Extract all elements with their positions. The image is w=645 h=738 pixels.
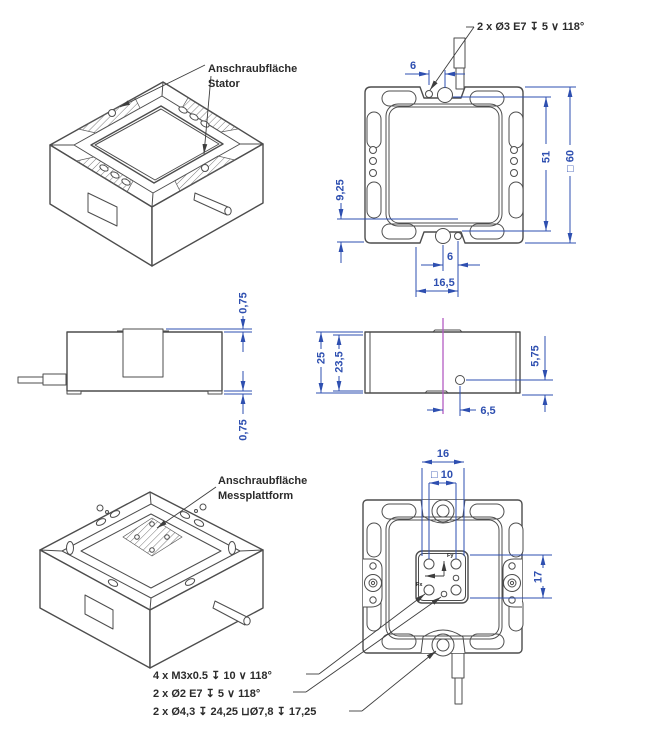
dim-0-75-top: 0,75: [238, 292, 250, 313]
dim-16: 16: [437, 448, 449, 460]
thread-hole-m3: [424, 585, 434, 595]
dim-16-5: 16,5: [433, 277, 454, 289]
dim-5-75: 5,75: [530, 345, 542, 366]
pin-hole-o2: [441, 591, 447, 597]
thread-hole-m3: [451, 559, 461, 569]
callout-thread-text: 4 x M3x0.5 ↧ 10 ∨ 118°: [153, 670, 272, 682]
dim-10-square: □ 10: [431, 469, 453, 481]
mount-hole: [436, 229, 451, 244]
technical-drawing-page: 6 51 □ 60 9,25 6: [0, 0, 645, 738]
dim-23-5: 23,5: [334, 351, 346, 372]
axis-fy-label: Fy: [447, 553, 454, 559]
iso-top-view: [50, 82, 263, 266]
plan-top-view: 6 51 □ 60 9,25 6: [334, 21, 584, 297]
platform-side: [123, 329, 163, 377]
callout-counterbore-text: 2 x Ø4,3 ↧ 24,25 ⊔Ø7,8 ↧ 17,25: [153, 706, 316, 718]
cable-wire: [456, 68, 464, 89]
foot: [208, 391, 222, 394]
label-platform-line2: Messplattform: [218, 490, 293, 502]
dim-25: 25: [316, 352, 328, 364]
flexure-slot: [509, 523, 523, 557]
pin-hole-o3: [426, 91, 433, 98]
axis-fx-label: Fx: [416, 582, 423, 588]
dim-inner-height: 23,5: [333, 335, 363, 391]
cable-connector-3: [452, 653, 464, 678]
cable-wire-3: [455, 678, 462, 704]
callout-pin-hole-text: 2 x Ø2 E7 ↧ 5 ∨ 118°: [153, 688, 260, 700]
iso-bottom-view: [40, 492, 263, 668]
dim-0-75-bottom: 0,75: [238, 419, 250, 440]
dim-60: □ 60: [565, 150, 577, 172]
dim-bottom-protrusion: 0,75: [224, 371, 252, 443]
plan-bottom-view: Fy Fx 16 □ 10 17: [363, 448, 552, 704]
pin-hole-o3: [455, 233, 462, 240]
thread-hole-m3: [451, 585, 461, 595]
mount-hole: [438, 88, 453, 103]
dim-6-bottom: 6: [447, 251, 453, 263]
flexure-slot: [509, 182, 523, 218]
flexure-slot: [367, 523, 381, 557]
dim-51: 51: [541, 151, 553, 163]
label-stator-line2: Stator: [208, 78, 241, 90]
cable-wire-side: [18, 377, 43, 383]
flexure-slot: [367, 182, 381, 218]
thread-hole-m3: [424, 559, 434, 569]
cable-connector-side: [43, 374, 66, 385]
label-stator-line1: Anschraubfläche: [208, 63, 297, 75]
pin-hole-o2: [453, 575, 459, 581]
label-platform-line1: Anschraubfläche: [218, 475, 307, 487]
dim-9-25: 9,25: [335, 179, 347, 200]
pad-hole: [202, 165, 209, 172]
flexure-slot: [367, 112, 381, 148]
flexure-slot: [509, 112, 523, 148]
cable-tip-2: [244, 617, 250, 625]
callout-top-hole: 2 x Ø3 E7 ↧ 5 ∨ 118°: [430, 21, 584, 90]
side-view-right: 25 23,5 5,75 6,5: [315, 318, 553, 417]
foot: [67, 391, 81, 394]
dim-17: 17: [533, 571, 545, 583]
cable-tip: [225, 207, 231, 215]
callout-top-hole-text: 2 x Ø3 E7 ↧ 5 ∨ 118°: [477, 21, 584, 33]
cable-exit-hole: [456, 376, 465, 385]
dim-6-top: 6: [410, 60, 416, 72]
drawing-canvas: 6 51 □ 60 9,25 6: [0, 0, 645, 738]
side-view-left: 0,75 0,75: [18, 290, 252, 443]
dim-6-5: 6,5: [480, 405, 495, 417]
pad-hole: [109, 110, 116, 117]
